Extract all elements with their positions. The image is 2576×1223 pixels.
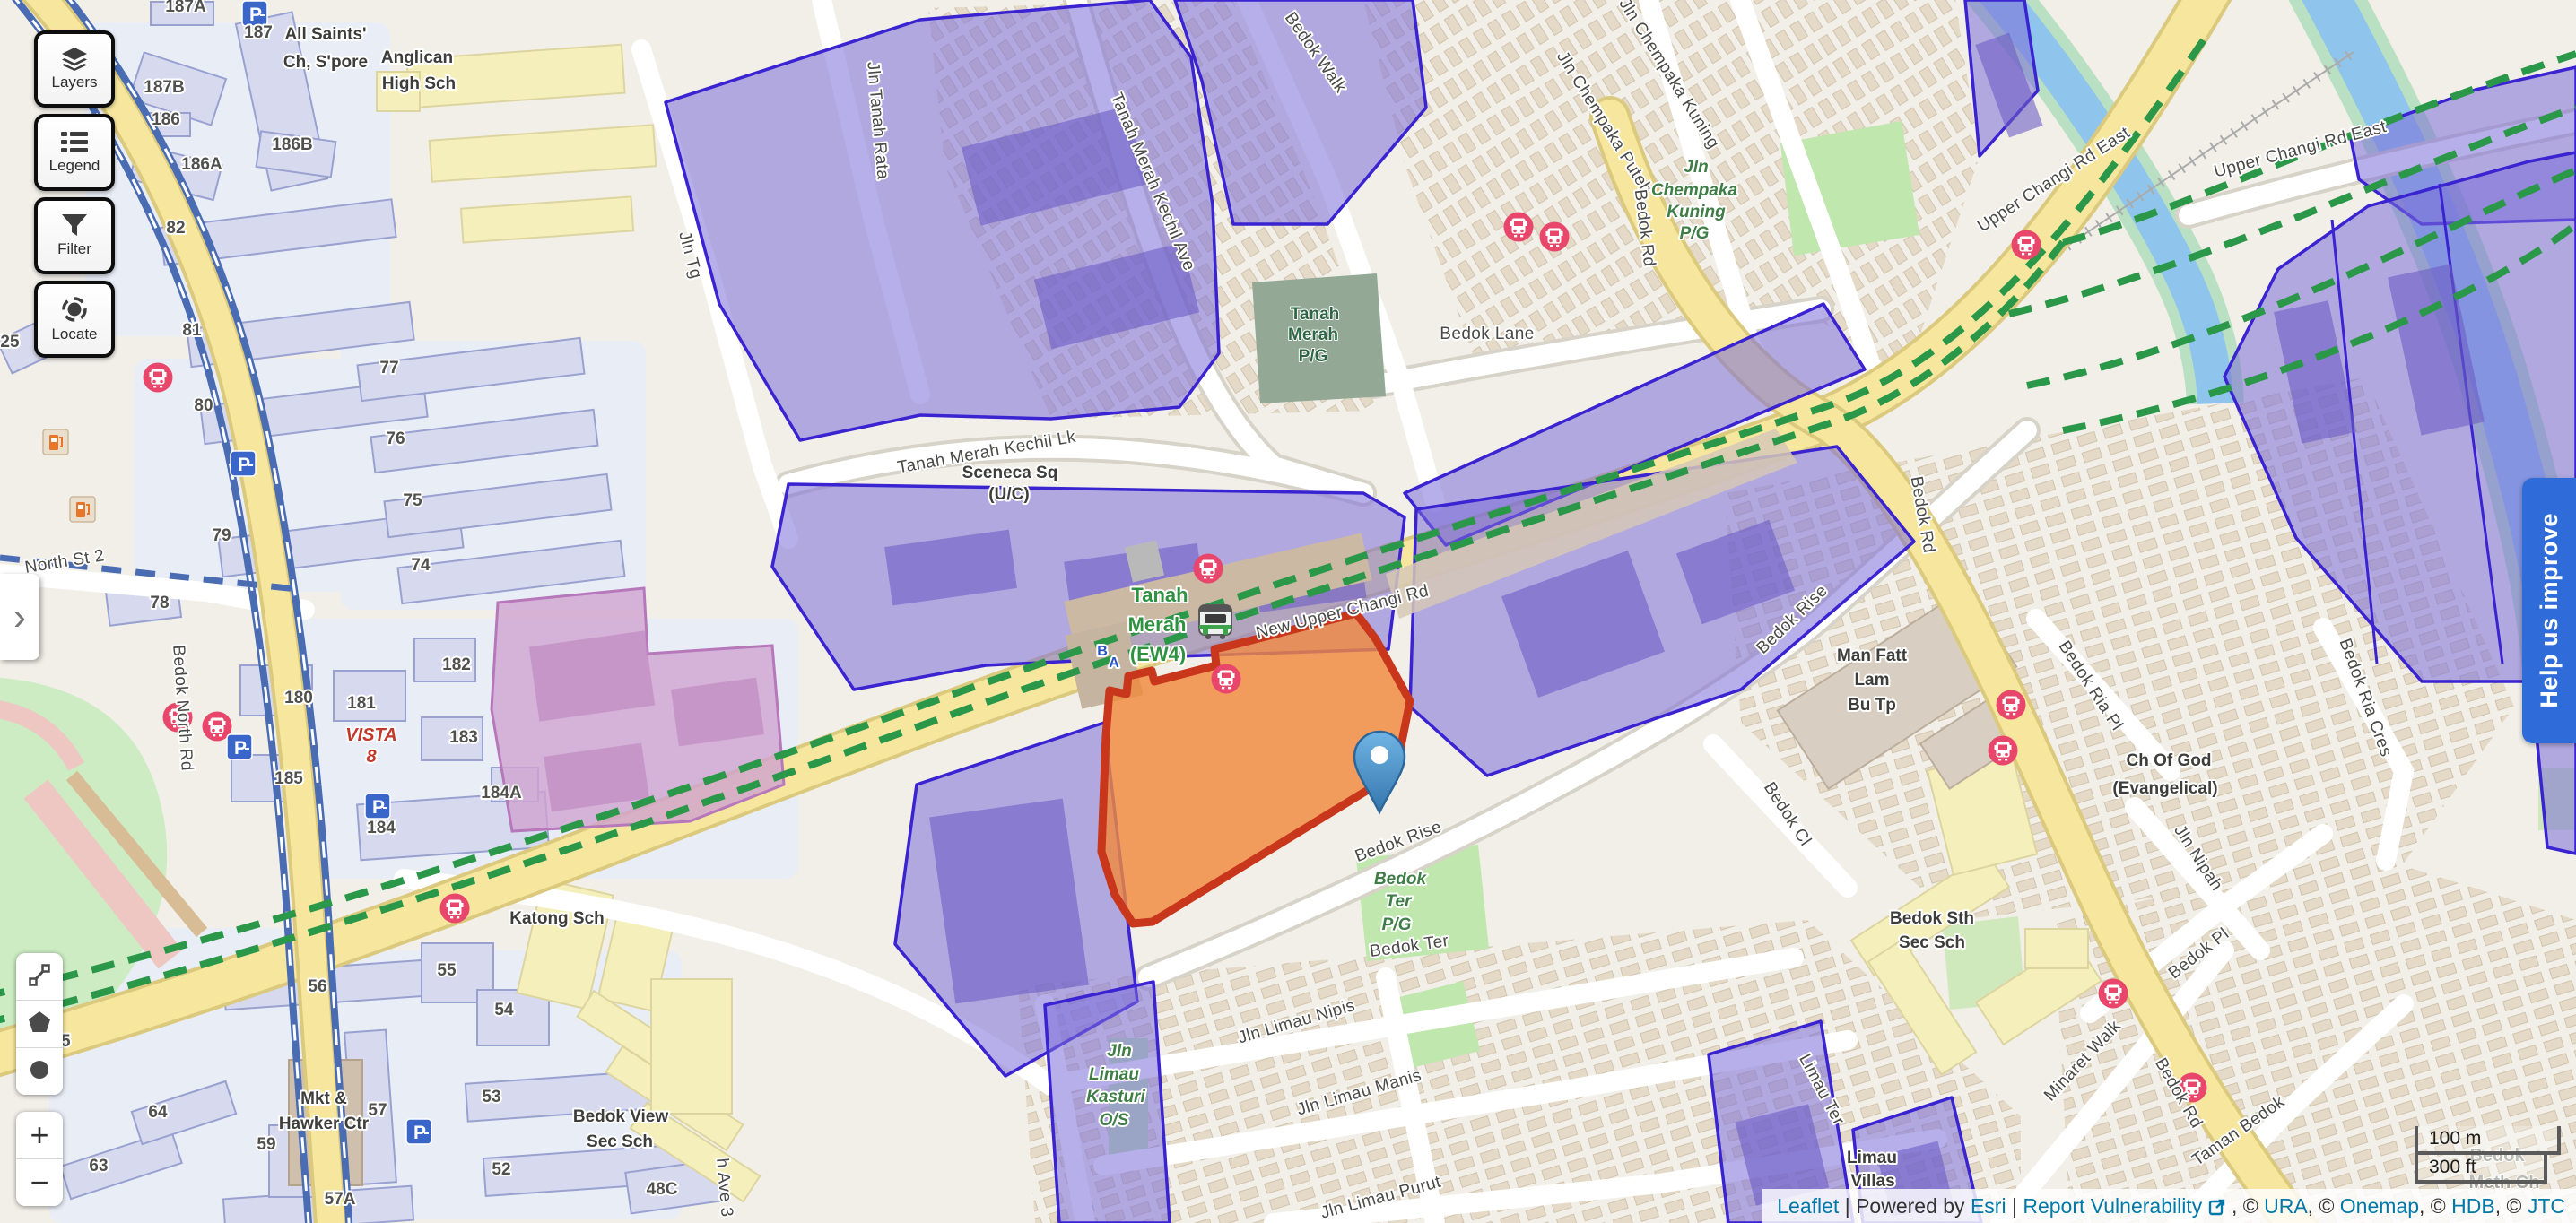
layers-button-label: Layers (51, 74, 97, 91)
map-label: Anglican (381, 48, 453, 67)
map-label: 80 (194, 396, 213, 415)
map-label: 77 (379, 359, 398, 377)
help-us-improve-banner[interactable]: Help us improve (2522, 478, 2576, 743)
map-label: P/G (1299, 347, 1328, 366)
zoom-control: + − (16, 1112, 63, 1206)
map-label: Ch Of God (2127, 751, 2212, 770)
map-label: Bu Tp (1848, 696, 1896, 715)
map-label: 63 (89, 1157, 108, 1175)
parking-icon (242, 1, 267, 26)
map-label: Bedok Lane (1440, 325, 1534, 343)
map-label: Kasturi (1086, 1088, 1145, 1106)
map-label: 8 (366, 747, 377, 767)
polygon-icon (28, 1010, 51, 1038)
map-label: VISTA (345, 725, 396, 745)
map-label: High Sch (382, 74, 456, 93)
map-label: Limau (1089, 1065, 1139, 1084)
map-label: 181 (347, 694, 376, 713)
attribution-text: , © (2495, 1194, 2528, 1218)
map-label: (EW4) (1130, 643, 1186, 665)
map-application: P (0, 0, 2576, 1223)
map-label: Merah (1288, 325, 1338, 344)
report-vulnerability-link[interactable]: Report Vulnerability (2023, 1194, 2202, 1218)
bus-icon (144, 363, 173, 393)
map-label: Sec Sch (587, 1132, 653, 1151)
map-label: Man Fatt (1837, 646, 1908, 665)
map-label: 76 (386, 429, 405, 448)
zoom-out-button[interactable]: − (16, 1158, 63, 1206)
map-label: 186 (152, 110, 180, 129)
bus-icon (1540, 222, 1570, 252)
map-label: 57A (325, 1190, 356, 1209)
map-label: Ch, S'pore (283, 53, 368, 72)
scale-metric: 100 m (2415, 1126, 2561, 1155)
map-label: 75 (403, 491, 422, 510)
minus-icon: − (30, 1167, 48, 1199)
map-canvas[interactable]: P (0, 0, 2576, 1223)
legend-button-label: Legend (49, 157, 100, 175)
map-label: 187B (144, 78, 184, 97)
draw-polyline-button[interactable] (16, 953, 63, 1000)
map-label: 187 (244, 23, 273, 42)
bus-icon (1504, 213, 1534, 242)
filter-button[interactable]: Filter (34, 197, 115, 274)
map-label: Mkt & (300, 1089, 347, 1108)
bus-icon (1989, 736, 2018, 766)
map-label: 183 (449, 728, 478, 747)
map-label: Ter (1386, 892, 1413, 911)
bus-icon (1997, 690, 2026, 720)
zoom-in-button[interactable]: + (16, 1112, 63, 1158)
map-label: Hawker Ctr (279, 1115, 370, 1133)
legend-button[interactable]: Legend (34, 114, 115, 191)
map-label: Merah (1128, 613, 1187, 636)
scale-imperial: 300 ft (2415, 1155, 2547, 1184)
map-label: 79 (212, 526, 231, 545)
onemap-link[interactable]: Onemap (2340, 1194, 2419, 1218)
map-label: 81 (182, 321, 202, 340)
map-label: Tanah (1131, 584, 1188, 606)
draw-polygon-button[interactable] (16, 1000, 63, 1047)
attribution-text: , © (2308, 1194, 2340, 1218)
plus-icon: + (30, 1119, 48, 1151)
layers-button[interactable]: Layers (34, 30, 115, 108)
chevron-right-icon: › (13, 595, 26, 638)
map-label: 56 (308, 977, 326, 996)
map-label: Tanah (1291, 305, 1340, 324)
map-label: P/G (1680, 224, 1710, 243)
ura-link[interactable]: URA (2264, 1194, 2308, 1218)
bus-icon (1194, 554, 1223, 584)
layers-icon (61, 48, 88, 71)
map-label: 78 (150, 594, 169, 612)
map-label: 184A (481, 784, 522, 802)
parking-icon (365, 794, 390, 819)
esri-link[interactable]: Esri (1971, 1194, 2006, 1218)
map-label: 52 (492, 1160, 510, 1179)
map-label: 59 (257, 1135, 275, 1154)
map-label: 186A (181, 155, 222, 174)
petrol-icon (70, 497, 95, 522)
bus-icon (2012, 230, 2041, 260)
map-label: 64 (148, 1103, 168, 1122)
map-label: Bedok Sth (1890, 909, 1974, 928)
map-label: Chempaka (1651, 181, 1738, 200)
legend-icon (61, 131, 88, 154)
map-label: Sceneca Sq (962, 464, 1058, 482)
map-label: 187A (165, 0, 206, 16)
map-label: Villas (1850, 1172, 1894, 1191)
petrol-icon (43, 429, 68, 455)
map-label: O/S (1100, 1111, 1129, 1130)
attribution-text: , © (2226, 1194, 2265, 1218)
leaflet-link[interactable]: Leaflet (1777, 1194, 1839, 1218)
map-label: All Saints' (284, 25, 366, 44)
filter-button-label: Filter (57, 240, 91, 258)
map-label: Limau (1847, 1149, 1897, 1167)
polyline-icon (28, 963, 51, 991)
map-label: Sec Sch (1899, 933, 1965, 952)
map-label: 180 (284, 689, 313, 707)
map-label: B (1097, 644, 1108, 659)
locate-icon (61, 296, 88, 323)
map-control-stack: Layers Legend Filter Locate (34, 30, 115, 358)
map-label: Lam (1854, 671, 1889, 690)
bus-icon (1212, 664, 1241, 694)
map-label: 182 (442, 655, 471, 674)
map-label: 54 (494, 1001, 514, 1019)
map-label: (U/C) (988, 485, 1029, 504)
attribution-separator: | (1839, 1194, 1856, 1218)
circle-icon (28, 1058, 51, 1086)
draw-toolbar (16, 953, 63, 1095)
powered-by-text: Powered by (1856, 1194, 1971, 1218)
map-label: 82 (166, 219, 185, 238)
bus-icon (2099, 979, 2128, 1009)
bus-icon (440, 894, 470, 924)
map-label: P/G (1382, 915, 1412, 934)
map-label: Kuning (1667, 203, 1726, 221)
map-label: 48C (647, 1180, 678, 1199)
map-label: (Evangelical) (2112, 779, 2217, 798)
attribution-bar: Leaflet | Powered by Esri | Report Vulne… (1762, 1189, 2576, 1223)
filter-icon (62, 214, 87, 238)
parking-icon (227, 734, 252, 759)
attribution-text: , © (2419, 1194, 2451, 1218)
panel-toggle-button[interactable]: › (0, 574, 39, 660)
map-label: A (1109, 655, 1119, 671)
map-label: Bedok View (573, 1107, 669, 1126)
map-label: Bedok (1374, 870, 1428, 889)
scale-control: 100 m 300 ft (2415, 1126, 2561, 1184)
hdb-link[interactable]: HDB (2451, 1194, 2495, 1218)
map-label: Jln (1684, 158, 1708, 177)
external-link-icon (2208, 1198, 2226, 1216)
map-label: 186B (272, 135, 312, 154)
map-label: Katong Sch (509, 909, 605, 928)
map-label: 53 (482, 1088, 500, 1106)
map-label: 57 (368, 1101, 387, 1120)
parking-icon (231, 451, 256, 476)
map-label: 184 (367, 819, 396, 837)
map-label: 25 (0, 333, 20, 351)
train-icon (1199, 605, 1231, 639)
locate-button-label: Locate (51, 325, 97, 343)
draw-circle-button[interactable] (16, 1047, 63, 1095)
attribution-separator: | (2006, 1194, 2023, 1218)
map-label: Jln (1107, 1042, 1131, 1061)
locate-button[interactable]: Locate (34, 281, 115, 358)
jtc-link[interactable]: JTC (2528, 1194, 2565, 1218)
map-label: 55 (437, 961, 457, 980)
map-label: 74 (411, 556, 431, 575)
help-banner-label: Help us improve (2536, 513, 2563, 708)
parking-icon (406, 1119, 431, 1144)
map-label: 185 (274, 769, 303, 788)
